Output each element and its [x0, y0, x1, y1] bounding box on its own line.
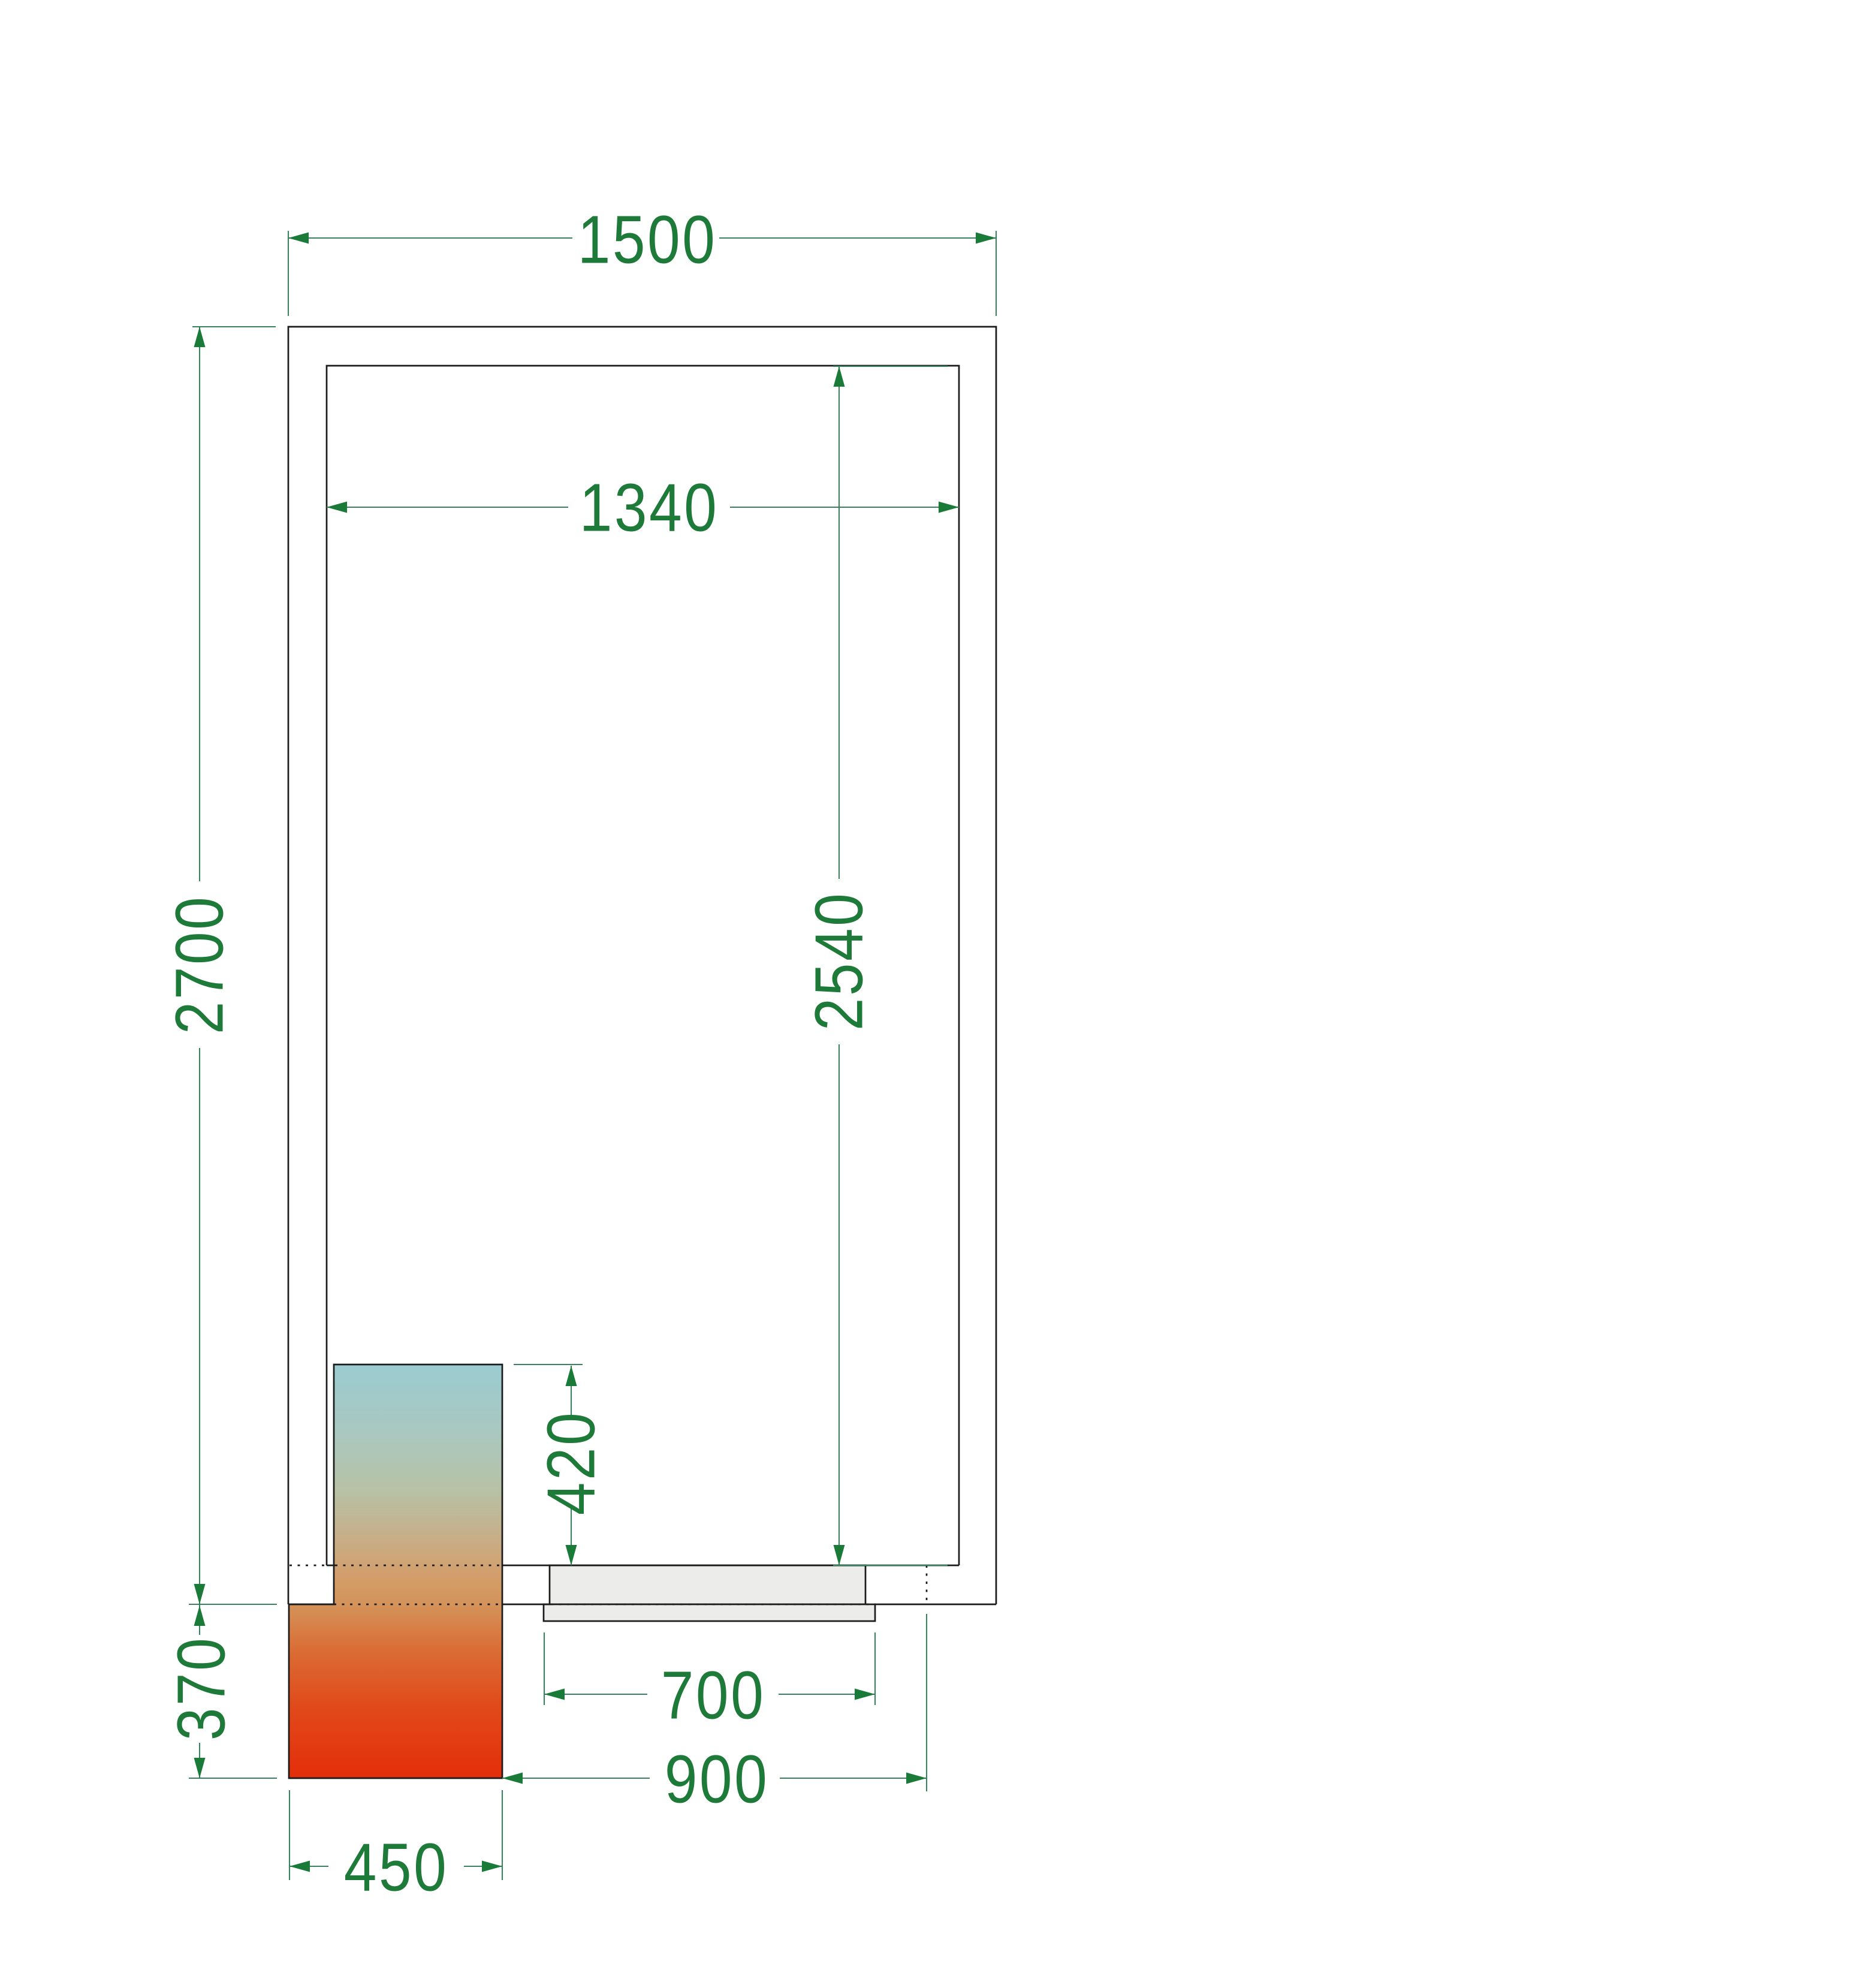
svg-text:2540: 2540: [801, 891, 877, 1031]
svg-text:2700: 2700: [162, 895, 237, 1035]
svg-text:420: 420: [533, 1411, 609, 1515]
svg-text:1340: 1340: [580, 470, 719, 546]
svg-text:1500: 1500: [578, 202, 717, 278]
svg-text:900: 900: [665, 1742, 769, 1817]
svg-text:450: 450: [344, 1830, 448, 1905]
svg-text:370: 370: [164, 1636, 239, 1740]
svg-text:700: 700: [661, 1658, 765, 1733]
